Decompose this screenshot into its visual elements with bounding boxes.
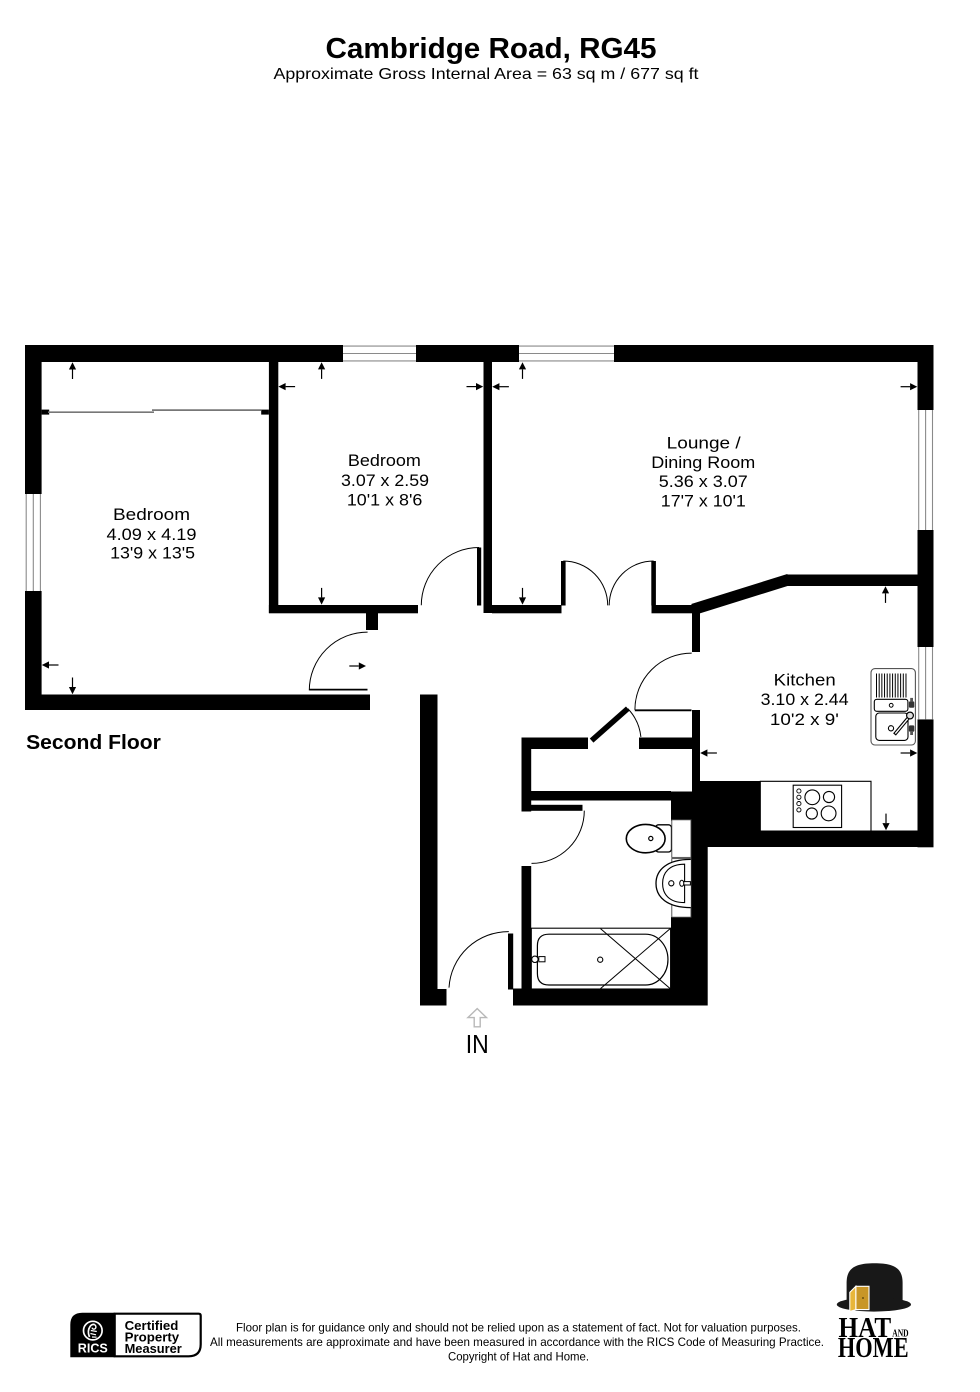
svg-text:Lounge /: Lounge /	[667, 434, 741, 453]
svg-text:IN: IN	[466, 1031, 489, 1059]
svg-text:3.10 x 2.44: 3.10 x 2.44	[761, 690, 849, 709]
svg-text:10'2 x 9': 10'2 x 9'	[770, 710, 839, 729]
svg-text:Floor plan is for guidance onl: Floor plan is for guidance only and shou…	[236, 1321, 801, 1335]
svg-text:Bedroom: Bedroom	[113, 505, 190, 524]
svg-text:17'7 x 10'1: 17'7 x 10'1	[661, 491, 746, 510]
svg-text:5.36 x 3.07: 5.36 x 3.07	[659, 472, 748, 491]
svg-text:10'1 x 8'6: 10'1 x 8'6	[347, 491, 423, 510]
svg-text:Dining Room: Dining Room	[651, 453, 755, 472]
svg-text:All measurements are approxima: All measurements are approximate and hav…	[210, 1335, 824, 1349]
svg-text:13'9 x 13'5: 13'9 x 13'5	[110, 544, 195, 563]
svg-text:3.07 x 2.59: 3.07 x 2.59	[341, 471, 429, 490]
svg-text:Kitchen: Kitchen	[774, 670, 836, 689]
svg-text:4.09 x 4.19: 4.09 x 4.19	[107, 525, 197, 544]
svg-text:Measurer: Measurer	[125, 1341, 182, 1356]
svg-text:Cambridge Road, RG45: Cambridge Road, RG45	[326, 33, 657, 65]
svg-text:Second Floor: Second Floor	[26, 731, 161, 754]
svg-text:Bedroom: Bedroom	[348, 451, 421, 470]
svg-text:Approximate Gross Internal Are: Approximate Gross Internal Area = 63 sq …	[274, 66, 700, 83]
svg-text:HOME: HOME	[838, 1333, 909, 1364]
svg-text:Copyright of Hat and Home.: Copyright of Hat and Home.	[448, 1350, 589, 1364]
svg-text:RICS: RICS	[78, 1342, 108, 1356]
